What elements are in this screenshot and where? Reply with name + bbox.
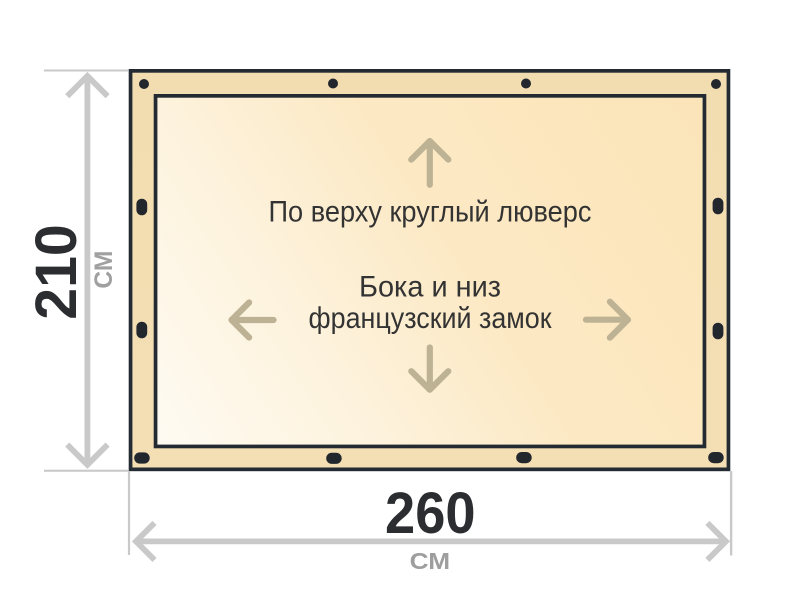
svg-text:210: 210 xyxy=(24,224,89,320)
svg-text:По верху круглый люверс: По верху круглый люверс xyxy=(269,196,592,229)
svg-text:СМ: СМ xyxy=(410,548,451,574)
svg-text:французский замок: французский замок xyxy=(309,302,553,335)
svg-text:260: 260 xyxy=(385,481,476,546)
svg-text:Бока и низ: Бока и низ xyxy=(359,271,501,304)
svg-text:СМ: СМ xyxy=(90,251,118,289)
